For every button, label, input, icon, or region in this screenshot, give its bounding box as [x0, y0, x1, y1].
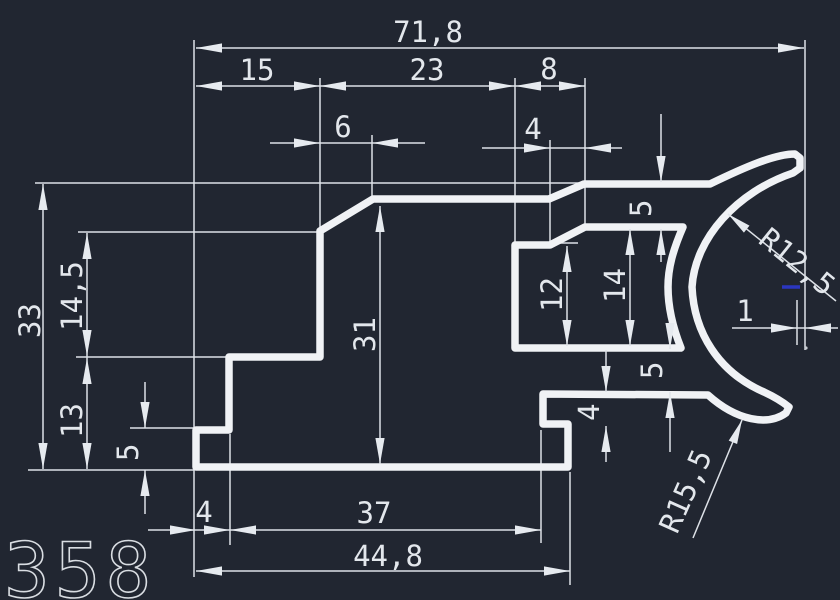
dim-label-tongue-inner: 12	[535, 277, 569, 312]
point-marker	[804, 346, 807, 349]
arrowhead	[625, 320, 634, 346]
arrowhead	[585, 143, 611, 152]
dim-label-top-seg-mid: 23	[410, 53, 445, 87]
dim-label-bottom-seg-mid: 37	[357, 496, 392, 530]
arrowhead	[544, 566, 570, 575]
arrowhead	[140, 402, 149, 428]
dim-label-radius-outer: R15,5	[652, 444, 719, 538]
dim-label-overall-width: 71,8	[393, 15, 463, 49]
arrowhead	[656, 229, 665, 255]
part-number-label: 358	[4, 526, 156, 600]
dim-label-edge-offset: 1	[736, 294, 753, 328]
dim-label-top-seg-left: 15	[240, 53, 275, 87]
arrowhead	[230, 525, 256, 534]
arrowhead	[729, 420, 742, 444]
arrowhead	[196, 43, 222, 52]
arrowhead	[656, 156, 665, 182]
dim-label-height-lower: 13	[55, 403, 89, 438]
arrowhead	[375, 206, 384, 232]
arrowhead	[140, 470, 149, 496]
arrowhead	[375, 438, 384, 464]
dim-label-flange-thickness: 4	[572, 404, 606, 421]
arrowhead	[294, 138, 320, 147]
arrowhead	[559, 81, 585, 90]
arrowhead	[82, 358, 91, 384]
dimension-lines	[43, 48, 838, 571]
dim-label-chamfer-run-right: 4	[524, 112, 541, 146]
dim-label-gap-bottom: 5	[635, 362, 669, 379]
arrowhead	[170, 525, 196, 534]
arrowhead	[562, 246, 571, 272]
dim-label-bottom-width: 44,8	[353, 539, 423, 573]
arrowhead	[728, 214, 750, 233]
arrowhead	[601, 366, 610, 392]
profile-outline	[196, 154, 800, 467]
dim-label-gap-top: 5	[624, 200, 658, 217]
dim-label-tongue-outer: 14	[598, 268, 632, 303]
dimension-labels: 71,8 15 23 8 6 4 1 33 14,5 13 5 31 12 14…	[13, 15, 840, 573]
dim-label-chamfer-run-left: 6	[334, 110, 351, 144]
arrowhead	[489, 81, 515, 90]
arrowhead	[515, 525, 541, 534]
dim-label-radius-inner: R12,5	[753, 221, 840, 302]
arrowhead	[82, 443, 91, 469]
arrowheads	[38, 43, 831, 575]
arrowhead	[196, 81, 222, 90]
arrowhead	[625, 229, 634, 255]
arrowhead	[196, 566, 222, 575]
cad-viewport[interactable]: 71,8 15 23 8 6 4 1 33 14,5 13 5 31 12 14…	[0, 0, 840, 600]
arrowhead	[320, 81, 346, 90]
arrowhead	[771, 323, 797, 332]
dim-label-step-height-left: 5	[111, 444, 145, 461]
arrowhead	[38, 443, 47, 469]
arrowhead	[38, 184, 47, 210]
arrowhead	[82, 233, 91, 259]
arrowhead	[805, 323, 831, 332]
dim-label-bottom-seg-left: 4	[195, 495, 212, 529]
dim-label-web-height: 31	[348, 317, 382, 352]
arrowhead	[372, 138, 398, 147]
dim-label-height-upper: 14,5	[55, 261, 89, 331]
arrowhead	[601, 426, 610, 452]
arrowhead	[82, 330, 91, 356]
arrowhead	[562, 320, 571, 346]
arrowhead	[515, 81, 541, 90]
dim-label-height-overall: 33	[13, 303, 47, 338]
cad-drawing-canvas[interactable]: 71,8 15 23 8 6 4 1 33 14,5 13 5 31 12 14…	[0, 0, 840, 600]
dim-label-top-seg-right: 8	[540, 52, 557, 86]
arrowhead	[778, 43, 804, 52]
arrowhead	[294, 81, 320, 90]
